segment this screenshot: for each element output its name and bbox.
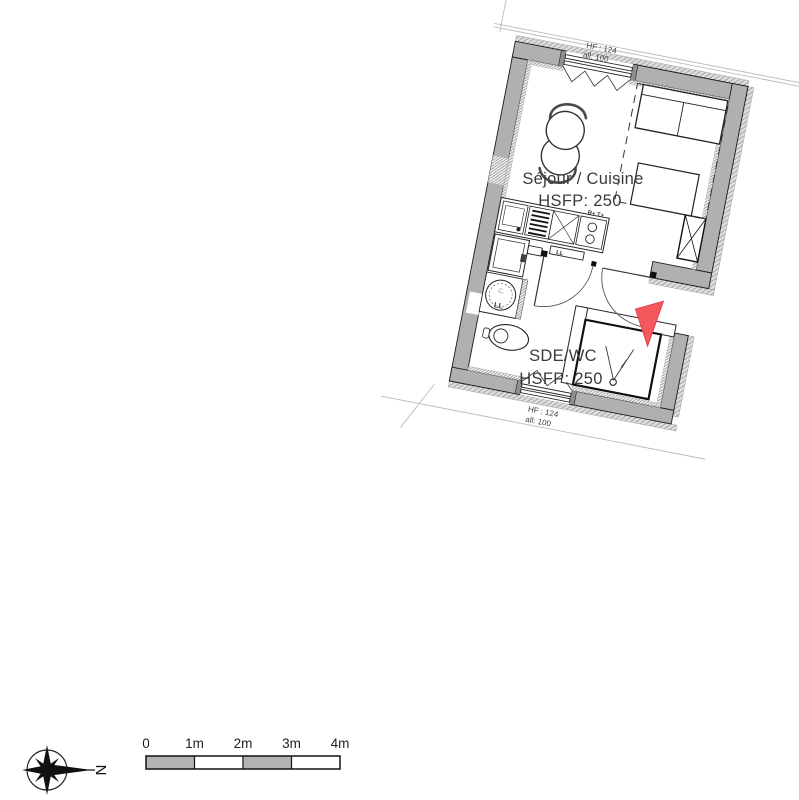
counter-ll-label: LL [555, 250, 564, 257]
living-room-height: HSFP: 250 [538, 192, 621, 210]
bathroom-door-hinge [541, 250, 548, 257]
scale-labels: 0 1m 2m 3m 4m [142, 736, 349, 751]
entrance-door-leaf [603, 268, 652, 278]
toilet [487, 321, 531, 353]
scale-tick-1: 1m [185, 736, 204, 751]
kitchen-cooktop [576, 216, 607, 249]
bathroom-door-leaf [534, 257, 544, 306]
partition-stub [527, 246, 542, 257]
floor-plan-drawing: HF : 124 all: 100 HF : 124 all: 100 [0, 0, 799, 800]
bathroom-height: HSFP: 250 [519, 370, 602, 388]
scale-tick-2: 2m [234, 736, 253, 751]
scale-tick-0: 0 [142, 736, 150, 751]
scale-bar: 0 1m 2m 3m 4m [142, 736, 349, 769]
compass-rose: N [22, 745, 109, 795]
scale-tick-4: 4m [331, 736, 350, 751]
scale-tick-3: 3m [282, 736, 301, 751]
window-top: HF : 124 all: 100 [561, 37, 636, 92]
bathroom-door-swing [534, 257, 593, 316]
scale-segment-3 [243, 756, 292, 769]
bathroom-name: SDE/WC [529, 347, 597, 365]
living-room-name: Séjour / Cuisine [522, 170, 643, 188]
scale-segment-1 [146, 756, 195, 769]
floor-plan-page: HF : 124 all: 100 HF : 124 all: 100 [0, 0, 799, 800]
plan-rotated-group: HF : 124 all: 100 HF : 124 all: 100 [376, 0, 799, 502]
compass-north-label: N [92, 765, 109, 776]
